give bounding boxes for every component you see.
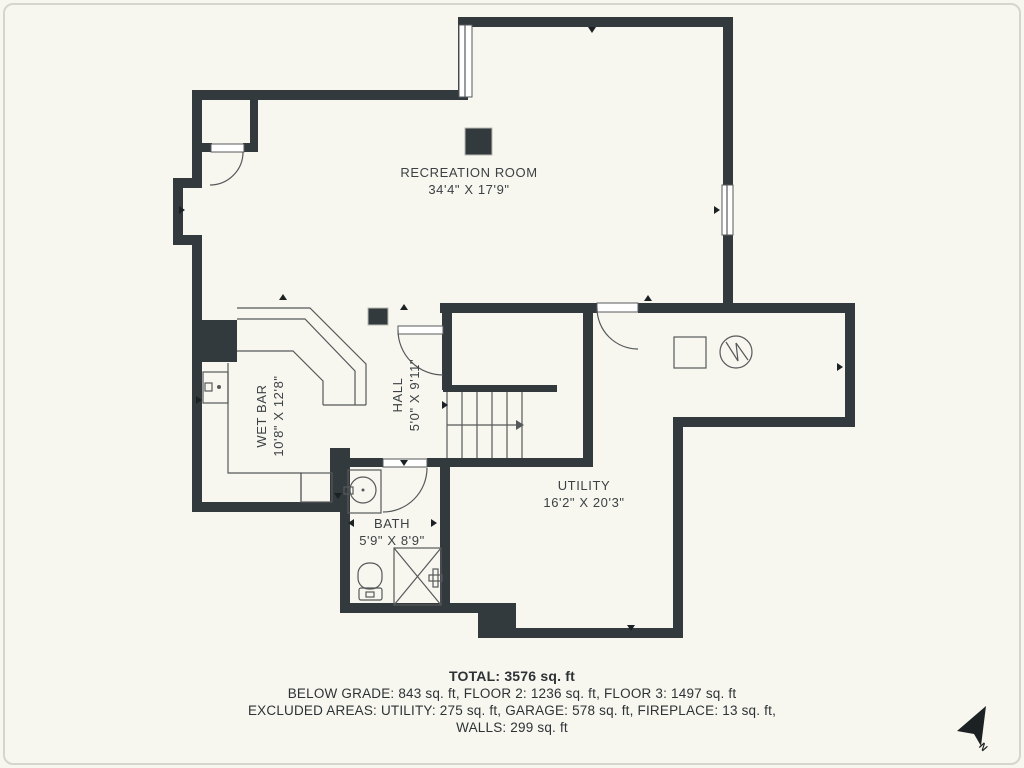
area-summary: TOTAL: 3576 sq. ft BELOW GRADE: 843 sq. … bbox=[0, 668, 1024, 736]
summary-total: TOTAL: 3576 sq. ft bbox=[0, 668, 1024, 685]
room-label-recreation-room: RECREATION ROOM 34'4" X 17'9" bbox=[400, 164, 537, 198]
room-name: WET BAR bbox=[253, 375, 270, 456]
room-label-wet-bar: WET BAR 10'8" X 12'8" bbox=[253, 375, 287, 456]
room-dimensions: 5'9" X 8'9" bbox=[359, 532, 425, 549]
summary-excluded: EXCLUDED AREAS: UTILITY: 275 sq. ft, GAR… bbox=[0, 702, 1024, 719]
room-label-bath: BATH 5'9" X 8'9" bbox=[359, 515, 425, 549]
room-dimensions: 10'8" X 12'8" bbox=[270, 375, 287, 456]
room-name: RECREATION ROOM bbox=[400, 164, 537, 181]
summary-floors: BELOW GRADE: 843 sq. ft, FLOOR 2: 1236 s… bbox=[0, 685, 1024, 702]
room-dimensions: 5'0" X 9'11" bbox=[406, 359, 423, 431]
floorplan-page: RECREATION ROOM 34'4" X 17'9" WET BAR 10… bbox=[0, 0, 1024, 768]
room-label-utility: UTILITY 16'2" X 20'3" bbox=[543, 477, 624, 511]
room-name: BATH bbox=[359, 515, 425, 532]
room-name: HALL bbox=[389, 359, 406, 431]
room-label-hall: HALL 5'0" X 9'11" bbox=[389, 359, 423, 431]
room-dimensions: 34'4" X 17'9" bbox=[400, 181, 537, 198]
floorplan-drawing bbox=[0, 0, 1024, 768]
summary-walls: WALLS: 299 sq. ft bbox=[0, 719, 1024, 736]
room-name: UTILITY bbox=[543, 477, 624, 494]
room-dimensions: 16'2" X 20'3" bbox=[543, 494, 624, 511]
